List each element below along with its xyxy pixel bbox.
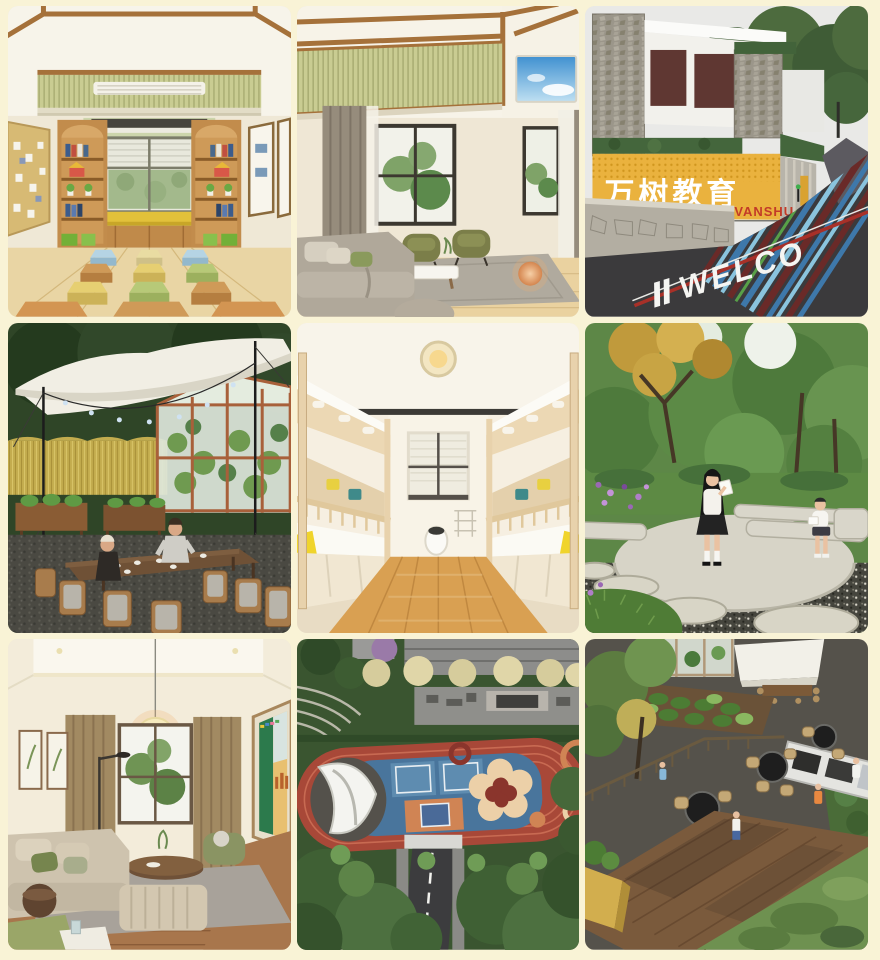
tile-living-room[interactable]	[8, 639, 291, 950]
bbq-terrace-render	[585, 639, 868, 950]
living-room-render	[8, 639, 291, 950]
campus-gate-render: 万树教育 VANSHU	[585, 6, 868, 317]
lounge-skylight-render	[297, 6, 580, 317]
gate-brand-text: VANSHU	[735, 204, 795, 219]
reading-garden-render	[585, 323, 868, 634]
armchair-green	[203, 831, 245, 865]
tile-classroom[interactable]	[8, 6, 291, 317]
dormitory-render	[297, 323, 580, 634]
tile-campus-gate[interactable]: 万树教育 VANSHU	[585, 6, 868, 317]
tile-bbq-terrace[interactable]	[585, 639, 868, 950]
tile-reading-garden[interactable]	[585, 323, 868, 634]
tile-tent-dining[interactable]	[8, 323, 291, 634]
image-gallery-grid: 万树教育 VANSHU	[0, 0, 880, 960]
tile-lounge-skylight[interactable]	[297, 6, 580, 317]
tent-dining-render	[8, 323, 291, 634]
sports-track-render	[297, 639, 580, 950]
tile-sports-track[interactable]	[297, 639, 580, 950]
classroom-render	[8, 6, 291, 317]
wall-artwork	[253, 701, 290, 851]
tile-dormitory[interactable]	[297, 323, 580, 634]
